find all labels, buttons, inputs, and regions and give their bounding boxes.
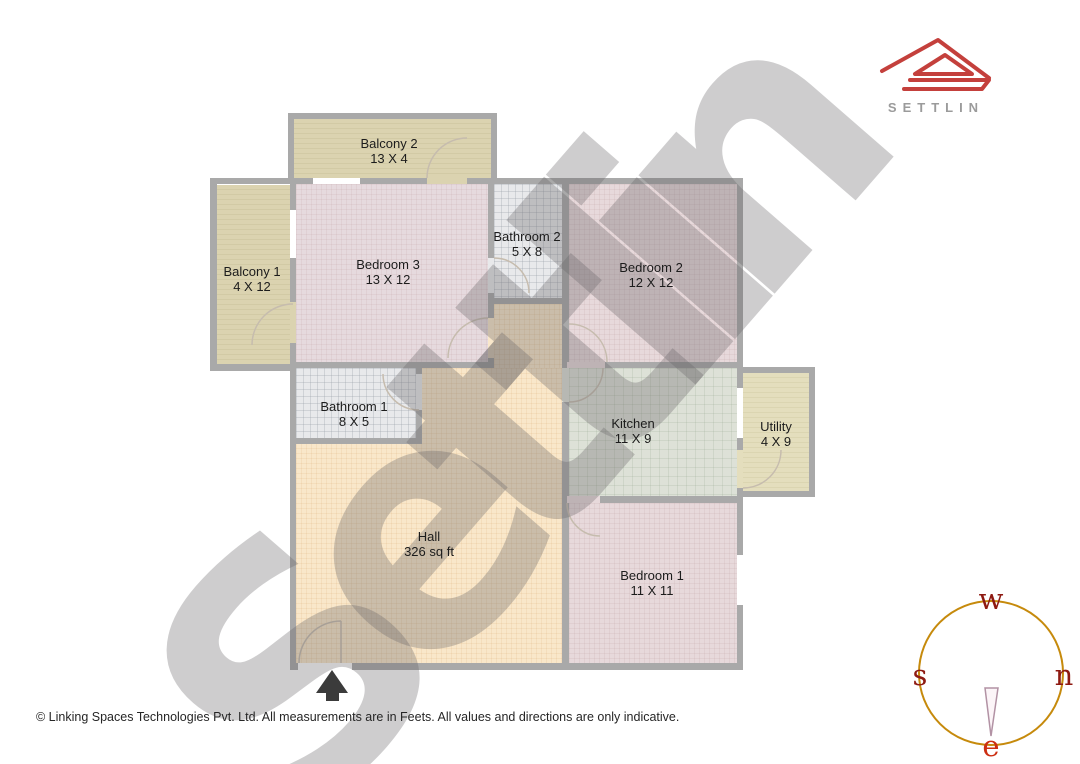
- room-hall-corridor: [494, 304, 562, 368]
- entrance-arrow-icon: [316, 670, 348, 701]
- window: [313, 178, 360, 184]
- room-label-balcony-2: Balcony 2 13 X 4: [314, 136, 464, 166]
- room-label-balcony-1: Balcony 1 4 X 12: [177, 264, 327, 294]
- room-dims: 12 X 12: [576, 275, 726, 290]
- brand-logo: SETTLIN: [872, 27, 998, 119]
- room-name: Bedroom 2: [576, 260, 726, 275]
- compass-north-label: n: [1049, 660, 1079, 690]
- room-label-utility: Utility 4 X 9: [701, 419, 851, 449]
- room-label-bathroom-1: Bathroom 1 8 X 5: [279, 399, 429, 429]
- door-gap: [567, 362, 605, 368]
- room-label-bedroom-2: Bedroom 2 12 X 12: [576, 260, 726, 290]
- room-label-bedroom-3: Bedroom 3 13 X 12: [313, 257, 463, 287]
- room-dims: 13 X 4: [314, 151, 464, 166]
- room-name: Hall: [354, 529, 504, 544]
- room-dims: 5 X 8: [452, 244, 602, 259]
- door-gap: [290, 302, 296, 343]
- room-dims: 4 X 12: [177, 279, 327, 294]
- main-door-opening: [298, 663, 352, 670]
- brand-name: SETTLIN: [876, 100, 996, 115]
- window: [737, 555, 743, 605]
- room-name: Bedroom 3: [313, 257, 463, 272]
- room-name: Kitchen: [558, 416, 708, 431]
- room-name: Bathroom 2: [452, 229, 602, 244]
- wall: [288, 113, 294, 184]
- room-dims: 11 X 11: [577, 583, 727, 598]
- wall: [290, 362, 494, 368]
- room-name: Utility: [701, 419, 851, 434]
- compass-west-label: w: [976, 584, 1006, 614]
- window: [290, 210, 296, 258]
- wall: [290, 438, 422, 444]
- floorplan-canvas: SETTLIN: [0, 0, 1080, 764]
- room-label-hall: Hall 326 sq ft: [354, 529, 504, 559]
- wall: [210, 364, 296, 371]
- room-name: Balcony 1: [177, 264, 327, 279]
- door-gap: [488, 258, 494, 293]
- compass-east-label: e: [976, 731, 1006, 761]
- room-dims: 4 X 9: [701, 434, 851, 449]
- wall: [737, 491, 815, 497]
- door-gap: [488, 318, 494, 358]
- compass-south-label: s: [905, 660, 935, 690]
- brand-house-icon: [872, 27, 998, 97]
- door-gap: [737, 450, 743, 488]
- wall: [290, 663, 743, 670]
- room-dims: 8 X 5: [279, 414, 429, 429]
- door-gap: [427, 178, 467, 184]
- room-label-kitchen: Kitchen 11 X 9: [558, 416, 708, 446]
- room-name: Bedroom 1: [577, 568, 727, 583]
- room-name: Bathroom 1: [279, 399, 429, 414]
- compass: w s n e: [905, 580, 1080, 764]
- room-dims: 13 X 12: [313, 272, 463, 287]
- footer-disclaimer: © Linking Spaces Technologies Pvt. Ltd. …: [36, 710, 679, 724]
- wall: [288, 113, 497, 119]
- room-label-bedroom-1: Bedroom 1 11 X 11: [577, 568, 727, 598]
- room-dims: 11 X 9: [558, 431, 708, 446]
- room-dims: 326 sq ft: [354, 544, 504, 559]
- room-name: Balcony 2: [314, 136, 464, 151]
- wall: [491, 113, 497, 184]
- wall: [488, 298, 569, 304]
- room-label-bathroom-2: Bathroom 2 5 X 8: [452, 229, 602, 259]
- wall: [737, 367, 815, 373]
- door-gap: [562, 368, 569, 402]
- door-gap: [567, 496, 600, 503]
